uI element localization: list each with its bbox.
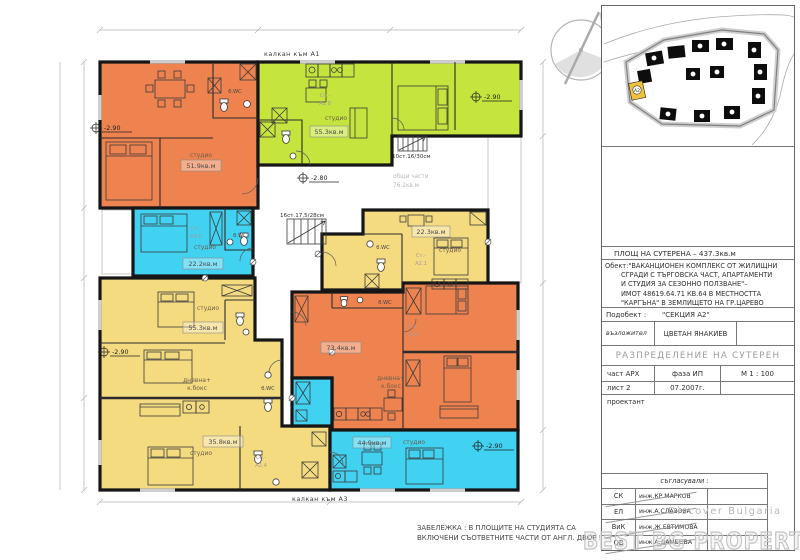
room-area-label: 44.9кв.м bbox=[357, 439, 386, 447]
client-signature-cell bbox=[736, 322, 794, 345]
wc-label: б.WC bbox=[233, 233, 247, 239]
stairs-lower-label: 16ст.17,5/28см bbox=[280, 213, 324, 219]
title-block: А2 ПЛОЩ НА СУТЕРЕНА – 437.3кв.м Обект:"В… bbox=[601, 5, 795, 551]
room-tag: Ст.- bbox=[416, 253, 426, 259]
room-type-label: студио bbox=[190, 152, 212, 159]
wc-label: б.WC bbox=[378, 300, 392, 306]
approval-name: инж.КР.МАРКОВ bbox=[635, 489, 707, 504]
room-studio-green-top bbox=[258, 62, 521, 165]
room-studio-orange-tl bbox=[100, 62, 258, 208]
room-type-label: студио bbox=[439, 247, 461, 254]
room-area-label: 22.2кв.м bbox=[188, 260, 217, 268]
basement-area-row: ПЛОЩ НА СУТЕРЕНА – 437.3кв.м bbox=[602, 246, 794, 259]
elevation-label: -2.80 bbox=[311, 174, 328, 182]
room-type-label: студио bbox=[194, 244, 216, 251]
kalkan-a1-label: калкан към А1 bbox=[264, 50, 320, 58]
room-area-label: 51.9кв.м bbox=[186, 162, 215, 170]
date-label: 07.2007г. bbox=[654, 382, 720, 394]
sheet-title: РАЗПРЕДЕЛЕНИЕ НА СУТЕРЕН bbox=[602, 345, 794, 365]
sheet-number: лист 2 bbox=[602, 382, 654, 394]
elevation-label: -2.90 bbox=[484, 93, 501, 101]
floor-plan: калкан към А1 калкан към А3 студио 51.9к… bbox=[0, 0, 600, 560]
english-courtyard-left bbox=[102, 210, 133, 274]
approvals-header: съгласували : bbox=[602, 473, 768, 488]
subobject-row: Подобект : "СЕКЦИЯ А2" bbox=[602, 307, 794, 321]
client-name: ЦВЕТАН ЯНАКИЕВ bbox=[654, 322, 736, 345]
room-tag: А2.4 bbox=[255, 463, 267, 469]
drawing-sheet: калкан към А1 калкан към А3 студио 51.9к… bbox=[0, 0, 800, 560]
room-tag: А2.8 bbox=[319, 101, 331, 107]
wc-label: б.WC bbox=[261, 386, 275, 392]
approval-code: СК bbox=[602, 489, 635, 504]
common-area-value: 76.2кв.м bbox=[393, 183, 419, 189]
room-tag: А2.6 bbox=[190, 234, 202, 240]
site-highlight-label: А2 bbox=[634, 88, 640, 94]
sheet-date-row: лист 2 07.2007г. bbox=[602, 381, 794, 394]
approval-code: ЕЛ bbox=[602, 505, 635, 520]
scale-label: М 1 : 100 bbox=[720, 366, 794, 381]
elevation-label: -2.90 bbox=[112, 348, 129, 356]
room-type-label: студио bbox=[325, 115, 347, 122]
client-label: възложител bbox=[602, 322, 654, 345]
designer-row: проектант bbox=[602, 394, 794, 473]
site-plan-inset: А2 bbox=[602, 6, 794, 146]
living-label: дневна+ bbox=[183, 377, 211, 384]
object-description: Обект:"ВАКАНЦИОНЕН КОМПЛЕКС ОТ ЖИЛИЩНИ С… bbox=[602, 259, 794, 307]
kalkan-a3-label: калкан към А3 bbox=[292, 495, 348, 503]
room-tag: А2.2 bbox=[408, 332, 420, 338]
object-line: СГРАДИ С ТЪРГОВСКА ЧАСТ, АПАРТАМЕНТИ bbox=[605, 271, 792, 280]
stairs-upper bbox=[398, 136, 427, 151]
room-tag: Сп.- bbox=[320, 93, 331, 99]
living-label: к.бокс bbox=[381, 383, 401, 390]
approval-signature-cell bbox=[707, 489, 767, 504]
living-label: дневна+ bbox=[377, 375, 405, 382]
title-block-empty-box bbox=[602, 146, 794, 246]
wc-label: б.WC bbox=[376, 245, 390, 251]
note-line2: ВКЛЮЧЕНИ СЪОТВЕТНИТЕ ЧАСТИ ОТ АНГЛ. ДВОР… bbox=[417, 534, 600, 542]
elevation-label: -2.90 bbox=[486, 442, 503, 450]
object-line: И СТУДИЯ ЗА СЕЗОННО ПОЛЗВАНЕ"– bbox=[605, 280, 792, 289]
empty-cell bbox=[720, 382, 794, 394]
subobject-label: Подобект : bbox=[602, 308, 662, 321]
room-tag: Сп.- bbox=[409, 324, 420, 330]
object-line: "КАРГЪНА" В ЗЕМЛИЩЕТО НА ГР.ЦАРЕВО bbox=[605, 299, 792, 307]
stairs-lower bbox=[287, 219, 326, 244]
room-type-label: студио bbox=[190, 450, 212, 457]
room-area-label: 22.3кв.м bbox=[416, 228, 445, 236]
wc-label: б.WC bbox=[228, 89, 242, 95]
watermark-discover-bulgaria: Discover Bulgaria bbox=[668, 506, 782, 517]
room-area-label: 55.3кв.м bbox=[188, 324, 217, 332]
watermark-best-bg-properties: BEST BG PROPERTIES bbox=[583, 527, 800, 555]
object-line: "ВАКАНЦИОНЕН КОМПЛЕКС ОТ ЖИЛИЩНИ bbox=[628, 262, 777, 270]
room-area-label: 73.4кв.м bbox=[326, 344, 355, 352]
common-area-label: общи части bbox=[393, 174, 429, 180]
object-label: Обект: bbox=[605, 262, 628, 270]
client-row: възложител ЦВЕТАН ЯНАКИЕВ bbox=[602, 321, 794, 345]
room-tag: Сп.- bbox=[256, 455, 267, 461]
room-tag: Сп.- bbox=[191, 226, 202, 232]
object-line: ИМОТ 48619.64.71 КВ.64 В МЕСТНОСТТА bbox=[605, 290, 792, 299]
room-type-label: студио bbox=[197, 305, 219, 312]
english-courtyard-right bbox=[488, 136, 521, 283]
part-phase-scale-row: част АРХ фаза ИП М 1 : 100 bbox=[602, 365, 794, 381]
approval-row: СК инж.КР.МАРКОВ bbox=[602, 488, 768, 504]
note-line1: ЗАБЕЛЕЖКА : В ПЛОЩИТЕ НА СТУДИЯТА СА bbox=[417, 524, 576, 532]
elevation-label: -2.90 bbox=[104, 124, 121, 132]
phase-label: фаза ИП bbox=[654, 366, 720, 381]
subobject-value: "СЕКЦИЯ А2" bbox=[662, 308, 710, 321]
part-label: част АРХ bbox=[602, 366, 654, 381]
room-area-label: 55.3кв.м bbox=[314, 128, 343, 136]
stairs-upper-label: 10ст.16/30см bbox=[392, 154, 431, 160]
room-tag: А2.1 bbox=[415, 261, 427, 267]
living-label: к.бокс bbox=[187, 385, 207, 392]
room-area-label: 35.8кв.м bbox=[208, 438, 237, 446]
room-type-label: студио bbox=[403, 439, 425, 446]
